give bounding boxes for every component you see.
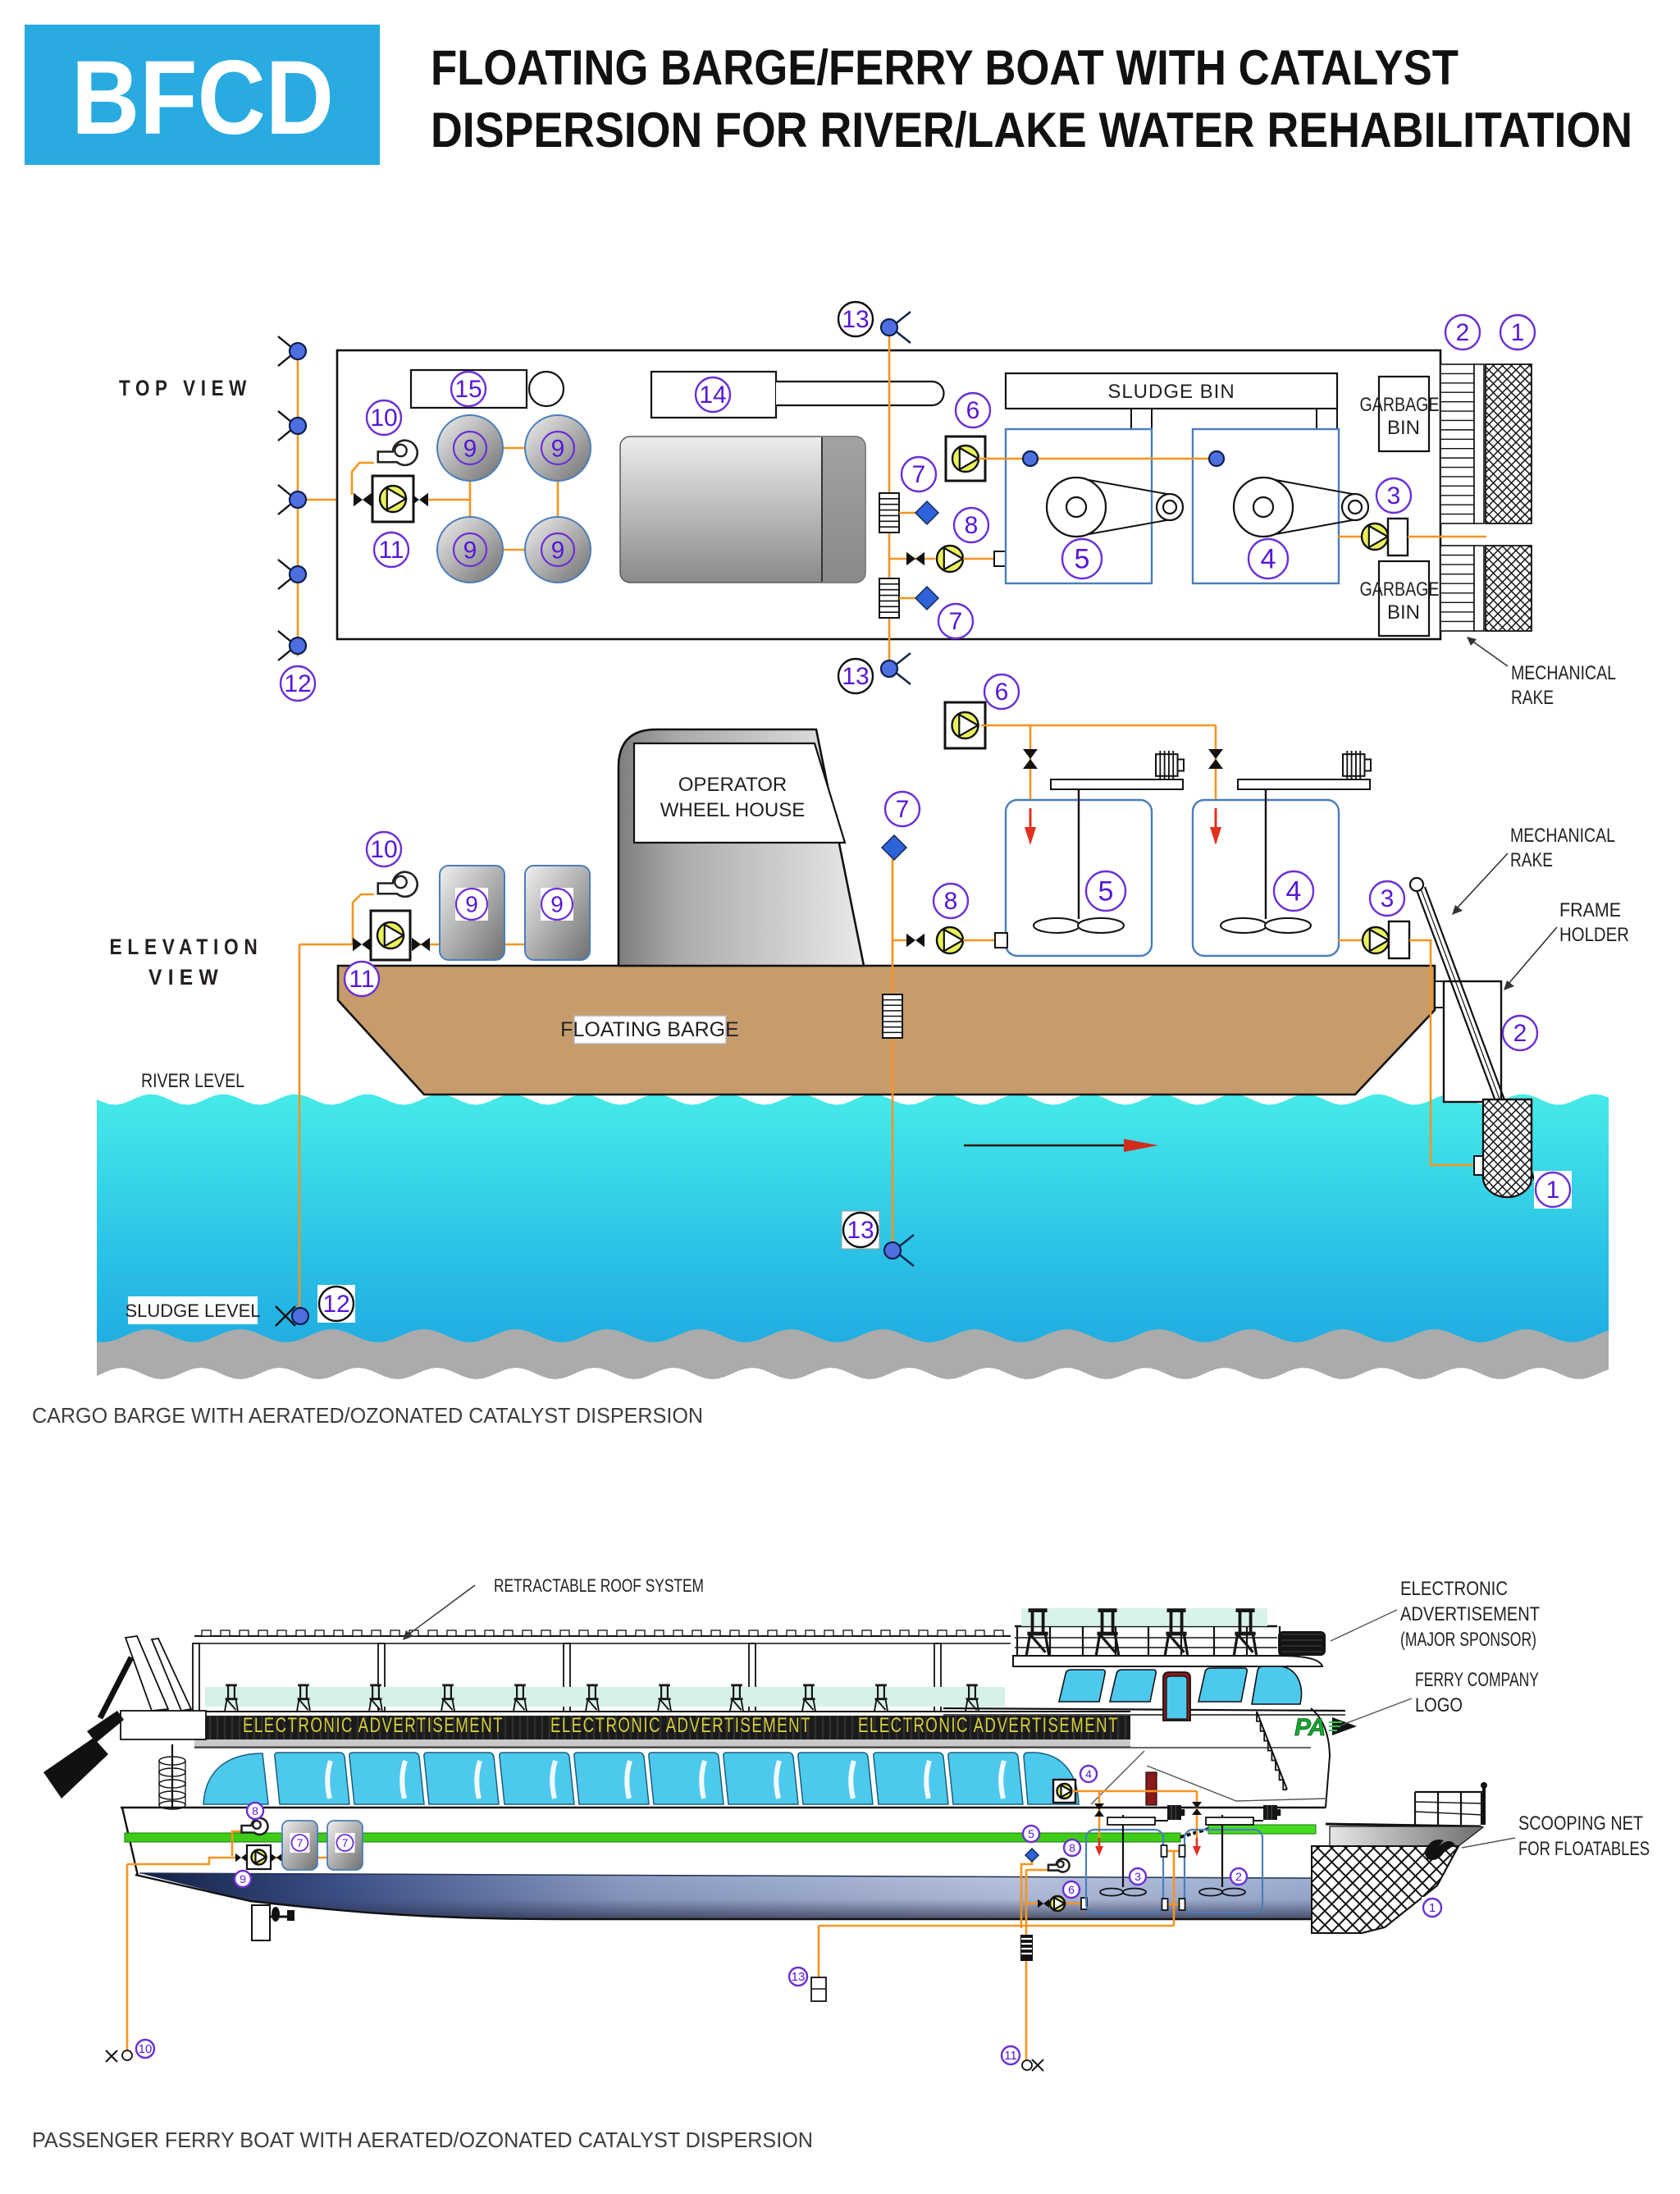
svg-text:15: 15 (454, 376, 482, 403)
svg-text:OPERATOR: OPERATOR (678, 774, 787, 796)
svg-text:SLUDGE LEVEL: SLUDGE LEVEL (125, 1300, 260, 1321)
svg-text:5: 5 (1098, 876, 1114, 907)
svg-text:8: 8 (965, 512, 979, 539)
svg-text:6: 6 (995, 679, 1009, 706)
svg-text:11: 11 (1004, 2049, 1017, 2063)
svg-text:14: 14 (699, 382, 726, 409)
svg-text:12: 12 (284, 670, 311, 697)
svg-text:WHEEL HOUSE: WHEEL HOUSE (660, 799, 805, 821)
svg-text:FLOATING BARGE/FERRY BOAT WITH: FLOATING BARGE/FERRY BOAT WITH CATALYST (431, 40, 1459, 95)
svg-text:7: 7 (896, 796, 910, 823)
svg-text:3: 3 (1387, 482, 1401, 510)
svg-text:DISPERSION FOR RIVER/LAKE WATE: DISPERSION FOR RIVER/LAKE WATER REHABILI… (431, 103, 1632, 158)
svg-text:13: 13 (847, 1217, 874, 1244)
svg-text:1: 1 (1429, 1901, 1436, 1915)
svg-text:ELECTRONIC ADVERTISEMENT: ELECTRONIC ADVERTISEMENT (243, 1714, 504, 1737)
svg-text:5: 5 (1028, 1827, 1034, 1840)
svg-text:PA: PA (1294, 1714, 1325, 1741)
svg-text:GARBAGE: GARBAGE (1360, 578, 1440, 601)
svg-text:SCOOPING NET: SCOOPING NET (1518, 1812, 1643, 1835)
svg-text:11: 11 (378, 537, 404, 564)
svg-text:RAKE: RAKE (1511, 687, 1554, 709)
svg-text:3: 3 (1381, 885, 1395, 912)
svg-text:FLOATING BARGE: FLOATING BARGE (560, 1018, 739, 1041)
svg-text:10: 10 (370, 405, 397, 432)
svg-text:9: 9 (463, 436, 477, 463)
svg-text:RIVER LEVEL: RIVER LEVEL (141, 1070, 244, 1092)
svg-text:(MAJOR SPONSOR): (MAJOR SPONSOR) (1400, 1629, 1536, 1651)
svg-text:11: 11 (349, 966, 374, 993)
svg-text:7: 7 (949, 608, 963, 635)
svg-text:10: 10 (139, 2042, 153, 2056)
svg-text:9: 9 (465, 892, 478, 917)
svg-text:FERRY COMPANY: FERRY COMPANY (1415, 1669, 1539, 1691)
svg-text:7: 7 (297, 1836, 304, 1849)
svg-text:8: 8 (1069, 1841, 1075, 1854)
svg-text:ADVERTISEMENT: ADVERTISEMENT (1400, 1603, 1540, 1625)
svg-text:BIN: BIN (1387, 417, 1420, 439)
svg-text:4: 4 (1261, 544, 1276, 575)
svg-text:9: 9 (550, 892, 564, 917)
svg-text:7: 7 (342, 1836, 349, 1849)
svg-text:RAKE: RAKE (1510, 849, 1553, 871)
svg-text:1: 1 (1546, 1177, 1560, 1204)
svg-text:CARGO BARGE WITH AERATED/OZONA: CARGO BARGE WITH AERATED/OZONATED CATALY… (32, 1403, 703, 1428)
svg-text:BIN: BIN (1387, 601, 1420, 624)
svg-text:FRAME: FRAME (1559, 899, 1621, 921)
svg-text:9: 9 (240, 1872, 246, 1885)
svg-text:MECHANICAL: MECHANICAL (1511, 662, 1616, 684)
svg-text:13: 13 (842, 306, 869, 333)
svg-text:6: 6 (1068, 1883, 1075, 1896)
svg-text:ELECTRONIC ADVERTISEMENT: ELECTRONIC ADVERTISEMENT (858, 1714, 1119, 1737)
svg-text:LOGO: LOGO (1415, 1694, 1463, 1716)
svg-text:TOP VIEW: TOP VIEW (119, 376, 252, 400)
svg-text:6: 6 (966, 397, 980, 424)
svg-text:FOR FLOATABLES: FOR FLOATABLES (1518, 1838, 1650, 1860)
svg-text:1: 1 (1511, 319, 1525, 346)
svg-text:2: 2 (1235, 1870, 1242, 1883)
svg-text:5: 5 (1075, 544, 1090, 575)
svg-text:8: 8 (944, 888, 958, 915)
svg-text:ELEVATION: ELEVATION (110, 935, 263, 959)
svg-text:13: 13 (842, 663, 869, 690)
svg-text:8: 8 (252, 1804, 258, 1817)
svg-text:PASSENGER FERRY BOAT WITH AERA: PASSENGER FERRY BOAT WITH AERATED/OZONAT… (32, 2128, 813, 2152)
svg-text:ELECTRONIC: ELECTRONIC (1400, 1578, 1508, 1600)
svg-text:GARBAGE: GARBAGE (1360, 394, 1440, 416)
svg-text:2: 2 (1456, 319, 1470, 346)
svg-text:3: 3 (1134, 1870, 1141, 1883)
svg-text:9: 9 (551, 537, 565, 564)
svg-text:4: 4 (1286, 876, 1302, 907)
svg-text:RETRACTABLE ROOF SYSTEM: RETRACTABLE ROOF SYSTEM (494, 1575, 704, 1596)
svg-text:BFCD: BFCD (71, 39, 334, 157)
svg-text:HOLDER: HOLDER (1559, 924, 1629, 946)
svg-text:12: 12 (322, 1291, 349, 1318)
svg-text:VIEW: VIEW (148, 965, 224, 990)
svg-text:4: 4 (1085, 1767, 1092, 1780)
svg-text:ELECTRONIC ADVERTISEMENT: ELECTRONIC ADVERTISEMENT (550, 1714, 811, 1737)
svg-text:10: 10 (370, 836, 397, 863)
svg-text:9: 9 (463, 537, 477, 564)
svg-text:2: 2 (1513, 1020, 1527, 1047)
svg-text:13: 13 (792, 1970, 806, 1984)
svg-text:9: 9 (551, 436, 565, 463)
svg-text:SLUDGE BIN: SLUDGE BIN (1107, 381, 1235, 403)
svg-text:MECHANICAL: MECHANICAL (1510, 825, 1615, 847)
svg-text:7: 7 (912, 461, 926, 488)
